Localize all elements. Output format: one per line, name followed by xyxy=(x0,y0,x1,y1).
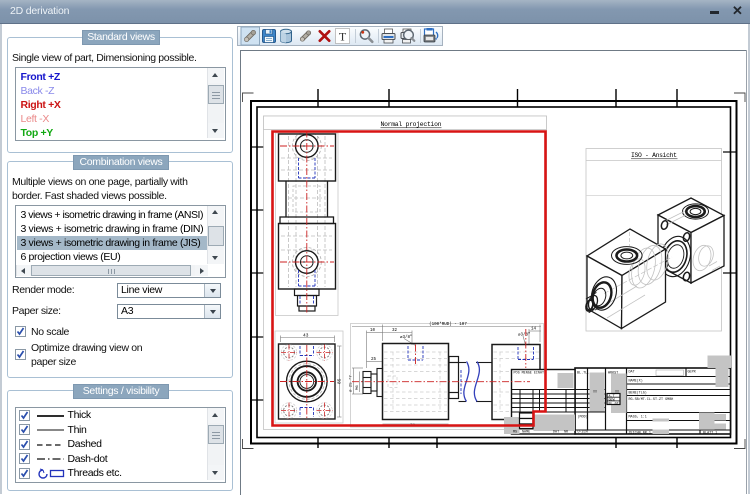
svg-text:(100*RUD) - 107: (100*RUD) - 107 xyxy=(429,322,467,327)
svg-text:RG.SB/MT.CL.ST.ZT GMBH: RG.SB/MT.CL.ST.ZT GMBH xyxy=(629,397,674,402)
svg-text:NR: NR xyxy=(564,431,568,435)
svg-text:U-ZCH: U-ZCH xyxy=(578,431,588,435)
svg-text:NAME(X): NAME(X) xyxy=(629,379,643,384)
svg-text:Normal projection: Normal projection xyxy=(381,121,442,128)
svg-text:WRKST: WRKST xyxy=(608,372,618,376)
svg-text:BLATT 1: BLATT 1 xyxy=(703,432,717,436)
svg-text:14: 14 xyxy=(531,328,537,332)
svg-text:DAT: DAT xyxy=(629,371,635,375)
svg-text:MS: MS xyxy=(513,431,517,435)
svg-text:⌀3/8": ⌀3/8" xyxy=(518,333,531,338)
svg-text:25: 25 xyxy=(371,358,377,362)
svg-text:MASS, 1:1: MASS, 1:1 xyxy=(629,416,647,420)
svg-text:ZEICHN.NR.1: ZEICHN.NR.1 xyxy=(629,432,651,436)
svg-text:DAT: DAT xyxy=(553,431,559,435)
svg-text:BL.GT: BL.GT xyxy=(609,402,619,406)
svg-text:T: T xyxy=(338,29,346,43)
svg-text:POS MENGE EINHT: POS MENGE EINHT xyxy=(514,372,545,376)
svg-text:NAME: NAME xyxy=(522,431,530,435)
svg-text:⌀ 25 *7: ⌀ 25 *7 xyxy=(349,375,354,392)
svg-text:BL.TL.: BL.TL. xyxy=(577,372,589,376)
svg-text:ISO - Ansicht: ISO - Ansicht xyxy=(631,152,677,159)
svg-text:85: 85 xyxy=(337,378,343,384)
svg-text:32: 32 xyxy=(392,329,398,333)
svg-text:XX: XX xyxy=(615,391,619,395)
svg-text:M6: M6 xyxy=(356,385,360,390)
svg-text:43: 43 xyxy=(303,333,309,339)
svg-text:XX: XX xyxy=(593,391,597,395)
svg-text:10: 10 xyxy=(370,329,376,333)
svg-text:⌀3/8": ⌀3/8" xyxy=(400,335,413,340)
svg-text:BENE(TLG): BENE(TLG) xyxy=(629,391,647,396)
svg-text:GEPR: GEPR xyxy=(688,371,696,375)
svg-text:(MOD): (MOD) xyxy=(578,415,588,420)
